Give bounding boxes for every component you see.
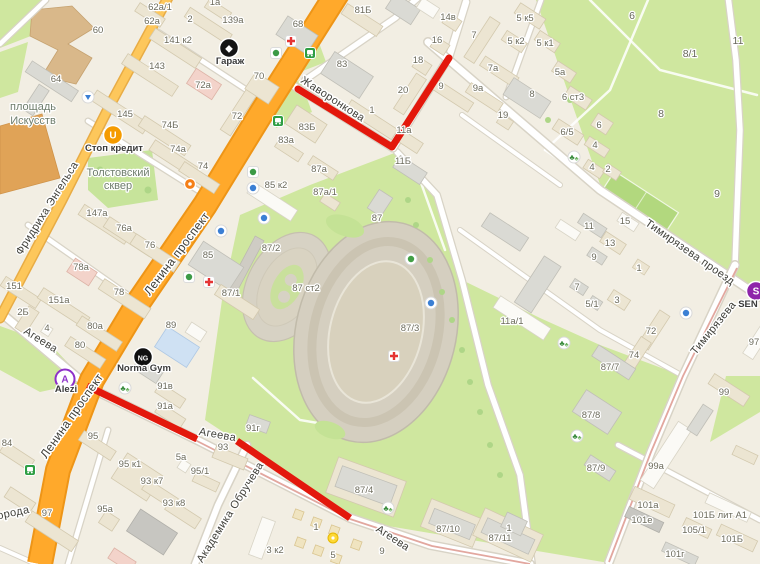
bus-stop-icon[interactable] — [305, 48, 316, 59]
place-label: сквер — [104, 180, 132, 192]
building-label: 70 — [254, 71, 265, 82]
building-label: 95а — [97, 504, 114, 515]
svg-text:♣: ♣ — [578, 435, 582, 441]
building-label: 84 — [2, 438, 13, 449]
building-label: 16 — [432, 35, 443, 46]
building-label: 4 — [592, 140, 597, 151]
building-label: 9 — [591, 252, 596, 263]
building-label: 87/7 — [601, 362, 620, 373]
shop-icon[interactable] — [271, 48, 282, 59]
building-label: 11а — [396, 125, 412, 136]
building-label: 7 — [471, 30, 476, 41]
building-label: 151 — [6, 281, 22, 292]
park-area-label: 8/1 — [683, 48, 698, 60]
building-label: 87/10 — [436, 524, 460, 535]
building-label: 87/1 — [222, 288, 241, 299]
norma-gym-poi-label[interactable]: Norma Gym — [117, 363, 171, 374]
building-label: 151а — [48, 295, 70, 306]
building-label: 97 — [42, 508, 53, 519]
norma-gym-poi-glyph: NG — [138, 356, 149, 363]
building-label: 74а — [170, 144, 187, 155]
building-label: 83а — [278, 135, 295, 146]
building-label: 91г — [246, 423, 261, 434]
park-area-label: 6 — [629, 10, 635, 22]
place-label: Искусств — [10, 115, 56, 127]
building-label: 145 — [117, 109, 133, 120]
sen-poi-icon[interactable]: S — [747, 282, 760, 301]
building-label: 80 — [75, 340, 86, 351]
building-label: 6/5 — [560, 127, 573, 138]
building-label: 87/8 — [582, 410, 601, 421]
education-icon[interactable] — [680, 307, 692, 319]
building-label: 99 — [719, 387, 730, 398]
building-label: 78 — [114, 287, 125, 298]
park-area-label: 9 — [714, 188, 720, 200]
building-label: 20 — [398, 85, 409, 96]
building-label: 1 — [506, 523, 511, 534]
building-label: 4 — [44, 323, 49, 334]
building-label: 14в — [440, 12, 456, 23]
map-canvas[interactable]: ♣♣♣♣♣♣♣♣♣♣ ◆UNGAS ЖаворонковаЛенина прос… — [0, 0, 760, 564]
building-label: 87/2 — [262, 243, 281, 254]
building-label: 80а — [87, 321, 104, 332]
building-label: 83 — [337, 59, 348, 70]
building-label: 6 ст3 — [562, 92, 584, 103]
building-label: 101г — [665, 549, 685, 560]
building-label: 3 — [614, 295, 619, 306]
garage-poi-label[interactable]: Гараж — [216, 56, 245, 67]
building-label: 5 к2 — [507, 36, 524, 47]
hotel-icon[interactable] — [405, 253, 417, 265]
svg-text:♣: ♣ — [575, 156, 579, 162]
building-label: 1 — [636, 263, 641, 274]
supermarket-icon[interactable] — [248, 167, 259, 178]
building-label: 139а — [222, 15, 244, 26]
education-icon[interactable] — [215, 225, 227, 237]
sen-poi-glyph: S — [753, 287, 760, 298]
building-label: 87/4 — [355, 485, 374, 496]
building-label: 2 — [187, 14, 192, 25]
building-label: 18 — [413, 55, 424, 66]
building-label: 91в — [157, 381, 173, 392]
building-label: 62а — [144, 16, 161, 27]
building-label: 6 — [596, 120, 601, 131]
building-label: 5 к1 — [536, 38, 553, 49]
garage-poi-icon[interactable]: ◆ — [220, 39, 239, 58]
map-viewport[interactable]: ♣♣♣♣♣♣♣♣♣♣ ◆UNGAS ЖаворонковаЛенина прос… — [0, 0, 760, 564]
trees-icon[interactable]: ♣♣ — [119, 382, 131, 394]
building-label: 5а — [555, 67, 566, 78]
building-label: 5а — [176, 452, 187, 463]
building-label: 87/11 — [488, 533, 511, 544]
building-label: 147а — [86, 208, 108, 219]
building-label: 15 — [620, 216, 631, 227]
food-icon[interactable] — [185, 179, 196, 190]
bus-stop-icon[interactable] — [25, 465, 36, 476]
building-label: 101Б — [721, 534, 743, 545]
club-icon[interactable] — [258, 212, 270, 224]
building-label: 81Б — [355, 5, 372, 16]
svg-text:♣: ♣ — [126, 387, 130, 393]
underpass-icon[interactable] — [82, 91, 94, 103]
building-label: 87/3 — [401, 323, 420, 334]
building-label: 74 — [198, 161, 209, 172]
trees-icon[interactable]: ♣♣ — [382, 502, 394, 514]
building-label: 76 — [145, 240, 156, 251]
building-label: 11 — [584, 221, 594, 232]
sport-icon[interactable] — [425, 297, 437, 309]
building-label: 91а — [157, 401, 174, 412]
building-label: 1а — [210, 0, 221, 8]
sen-poi-label[interactable]: SEN — [738, 299, 758, 310]
building-label: 97 — [749, 337, 760, 348]
building-label: 143 — [149, 61, 165, 72]
building-label: 93 к7 — [141, 476, 164, 487]
building-label: 1 — [369, 105, 374, 116]
building-label: 101е — [631, 515, 652, 526]
building-label: 87 — [372, 213, 383, 224]
stop-kredit-poi-icon[interactable]: U — [104, 126, 123, 145]
building-label: 2 — [605, 164, 610, 175]
building-label: 7а — [488, 63, 499, 74]
bus-stop-icon[interactable] — [273, 116, 284, 127]
trees-icon[interactable]: ♣♣ — [568, 151, 580, 163]
building-label: 105/1 — [682, 525, 706, 536]
building-label: 141 к2 — [164, 35, 192, 46]
building-label: 9а — [473, 83, 484, 94]
building-label: 19 — [498, 110, 509, 121]
building-label: 5 к5 — [516, 13, 533, 24]
building-label: 9 — [379, 546, 384, 557]
svg-text:♣: ♣ — [565, 342, 569, 348]
stop-kredit-poi-glyph: U — [109, 131, 116, 142]
building-label: 72 — [646, 326, 657, 337]
building-label: 85 — [203, 250, 214, 261]
building-label: 95 к1 — [119, 459, 142, 470]
pharmacy-icon[interactable] — [389, 351, 400, 362]
building-label: 89 — [166, 320, 177, 331]
building-label: 8 — [529, 89, 534, 100]
building-label: 1 — [313, 522, 318, 533]
building-label: 78а — [73, 262, 90, 273]
shop-icon[interactable] — [184, 272, 195, 283]
building-label: 95/1 — [191, 466, 210, 477]
building-label: 60 — [93, 25, 104, 36]
building-label: 72а — [195, 80, 212, 91]
park-area-label: 11 — [733, 35, 744, 47]
building-label: 74 — [629, 350, 640, 361]
education-icon[interactable] — [247, 182, 259, 194]
pharmacy-icon[interactable] — [286, 36, 297, 47]
building-label: 93 к8 — [163, 498, 186, 509]
building-label: 64 — [51, 74, 62, 85]
alezi-poi-label[interactable]: Alezi — [55, 384, 77, 395]
building-label: 68 — [293, 19, 304, 30]
building-label: 87а/1 — [313, 187, 337, 198]
building-label: 83Б — [299, 122, 316, 133]
building-label: 85 к2 — [265, 180, 288, 191]
building-label: 87 ст2 — [292, 283, 320, 294]
building-label: 5/1 — [585, 299, 598, 310]
trees-icon[interactable]: ♣♣ — [571, 430, 583, 442]
garage-poi-glyph: ◆ — [225, 44, 233, 55]
building-label: 101Б лит А1 — [693, 510, 747, 521]
place-label: Толстовский — [86, 167, 149, 179]
building-label: 13 — [605, 238, 616, 249]
park-area-label: 8 — [658, 108, 664, 120]
building-label: 3 к2 — [266, 545, 283, 556]
trees-icon[interactable]: ♣♣ — [558, 337, 570, 349]
building-label: 11Б — [395, 156, 411, 167]
building-label: 87/9 — [587, 463, 606, 474]
building-label: 62а/1 — [148, 2, 172, 13]
building-label: 74Б — [162, 120, 179, 131]
building-label: 93 — [218, 442, 229, 453]
building-label: 101а — [637, 500, 659, 511]
stop-kredit-poi-label[interactable]: Стоп кредит — [85, 143, 143, 154]
building-label: 9 — [438, 81, 443, 92]
building-label: 2Б — [17, 307, 29, 318]
building-label: 7 — [574, 282, 579, 293]
building-label: 87а — [311, 164, 328, 175]
svg-text:♣: ♣ — [389, 507, 393, 513]
poi-icon[interactable] — [328, 533, 338, 543]
building-label: 76а — [116, 223, 133, 234]
building-label: 72 — [232, 111, 243, 122]
building-label: 99а — [648, 461, 665, 472]
building-label: 95 — [88, 431, 99, 442]
building-label: 11а/1 — [500, 316, 523, 327]
building-label: 5 — [330, 550, 335, 561]
building-label: 4 — [589, 162, 594, 173]
place-label: площадь — [10, 101, 56, 113]
pharmacy-icon[interactable] — [204, 277, 215, 288]
